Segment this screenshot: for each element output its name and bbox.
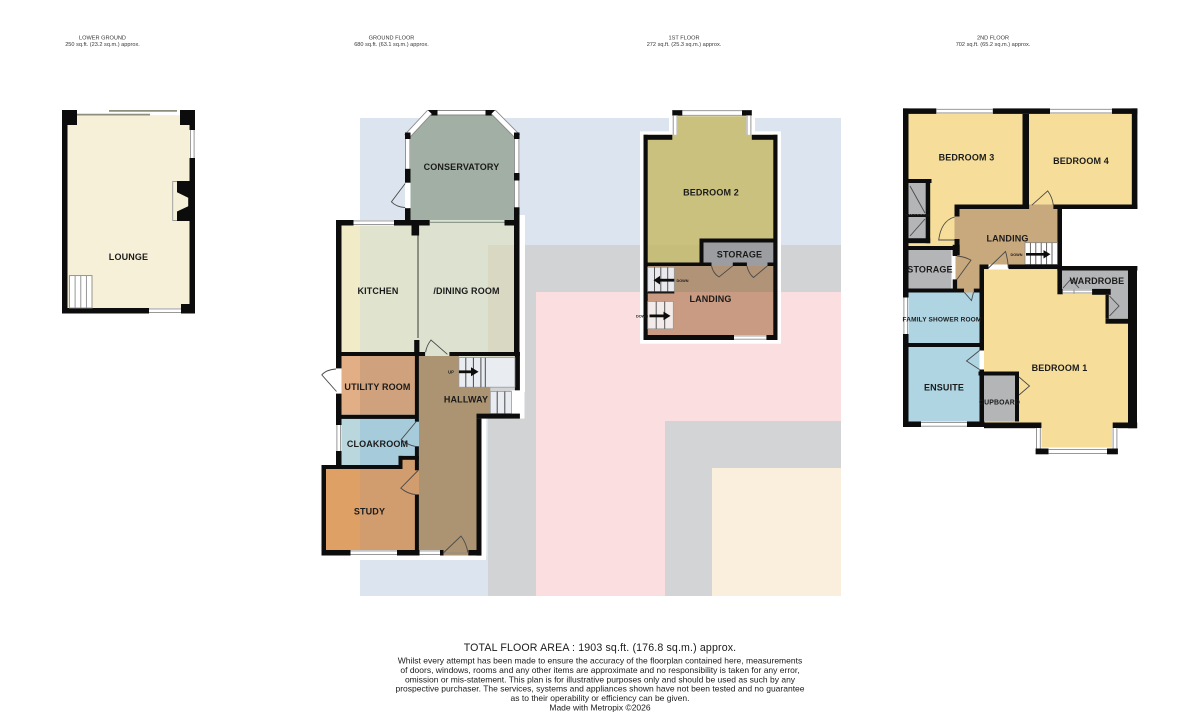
svg-text:UP: UP <box>448 369 454 374</box>
svg-text:CUPBOARD: CUPBOARD <box>979 400 1020 407</box>
svg-text:/DINING ROOM: /DINING ROOM <box>433 286 499 296</box>
svg-text:FAMILY SHOWER ROOM: FAMILY SHOWER ROOM <box>903 317 982 324</box>
svg-text:702 sq.ft. (65.2 sq.m.) approx: 702 sq.ft. (65.2 sq.m.) approx. <box>956 42 1031 48</box>
svg-text:WARDROBE: WARDROBE <box>905 213 930 218</box>
svg-text:STORAGE: STORAGE <box>907 265 952 275</box>
svg-text:LANDING: LANDING <box>689 294 731 304</box>
svg-text:DOWN: DOWN <box>676 279 688 283</box>
svg-text:Made with Metropix ©2026: Made with Metropix ©2026 <box>549 703 651 713</box>
svg-text:DOWN: DOWN <box>1010 253 1022 257</box>
svg-text:TOTAL FLOOR AREA : 1903 sq.ft.: TOTAL FLOOR AREA : 1903 sq.ft. (176.8 sq… <box>464 642 737 654</box>
svg-text:BEDROOM 3: BEDROOM 3 <box>939 153 995 163</box>
svg-text:LANDING: LANDING <box>986 234 1028 244</box>
svg-text:CLOAKROOM: CLOAKROOM <box>347 439 408 449</box>
svg-text:250 sq.ft. (23.2 sq.m.) approx: 250 sq.ft. (23.2 sq.m.) approx. <box>65 42 140 48</box>
svg-text:WARDROBE: WARDROBE <box>1070 276 1125 286</box>
svg-text:STORAGE: STORAGE <box>717 249 762 259</box>
svg-text:UTILITY ROOM: UTILITY ROOM <box>344 382 410 392</box>
svg-text:BEDROOM 4: BEDROOM 4 <box>1053 156 1109 166</box>
svg-text:HALLWAY: HALLWAY <box>444 395 488 405</box>
svg-text:680 sq.ft. (63.1 sq.m.) approx: 680 sq.ft. (63.1 sq.m.) approx. <box>354 42 429 48</box>
svg-text:BEDROOM 2: BEDROOM 2 <box>683 188 739 198</box>
svg-text:STUDY: STUDY <box>354 507 385 517</box>
svg-text:BEDROOM 1: BEDROOM 1 <box>1032 363 1088 373</box>
svg-text:272 sq.ft. (25.3 sq.m.) approx: 272 sq.ft. (25.3 sq.m.) approx. <box>647 42 722 48</box>
svg-text:2ND FLOOR: 2ND FLOOR <box>977 36 1009 42</box>
svg-text:GROUND FLOOR: GROUND FLOOR <box>369 36 415 42</box>
svg-text:1ST FLOOR: 1ST FLOOR <box>669 36 700 42</box>
svg-text:LOUNGE: LOUNGE <box>109 252 148 262</box>
svg-text:CONSERVATORY: CONSERVATORY <box>424 162 500 172</box>
svg-text:KITCHEN: KITCHEN <box>357 286 398 296</box>
svg-text:LOWER GROUND: LOWER GROUND <box>79 36 126 42</box>
svg-text:DOWN: DOWN <box>636 314 648 318</box>
svg-text:ENSUITE: ENSUITE <box>924 383 964 393</box>
